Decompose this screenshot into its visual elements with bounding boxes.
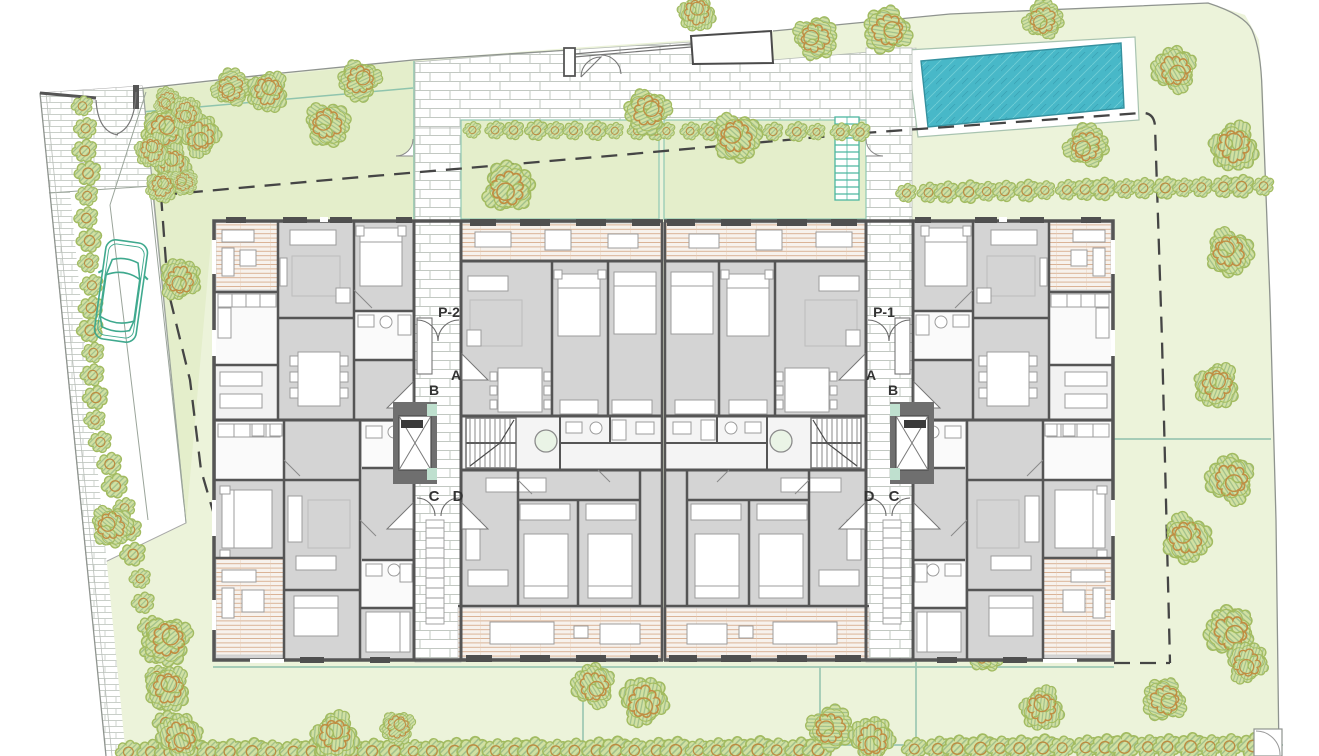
svg-text:D: D: [453, 488, 464, 505]
svg-text:D: D: [864, 488, 875, 505]
svg-text:C: C: [889, 488, 900, 505]
svg-text:A: A: [451, 367, 461, 383]
svg-text:A: A: [866, 367, 876, 383]
svg-text:P-1: P-1: [873, 304, 895, 320]
svg-text:B: B: [888, 382, 898, 398]
svg-text:C: C: [429, 488, 440, 505]
svg-text:P-2: P-2: [438, 304, 460, 320]
svg-text:B: B: [429, 382, 439, 398]
